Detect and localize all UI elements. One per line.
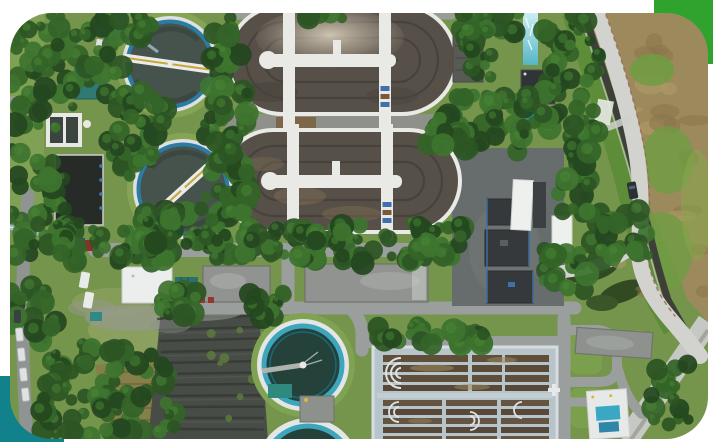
aerial-photo-composition <box>0 0 713 444</box>
lower-channels <box>383 398 549 443</box>
white-blue-building <box>586 389 629 440</box>
parked-car <box>15 328 23 342</box>
dark-shed <box>533 182 546 228</box>
parked-car <box>17 348 25 362</box>
parked-car <box>21 388 29 402</box>
grey-building-c <box>575 327 653 358</box>
parked-car <box>19 368 27 382</box>
parked-car-dark <box>14 310 21 323</box>
white-canopy-1 <box>511 180 534 231</box>
hero-image-block <box>0 0 713 444</box>
teal-container <box>90 312 102 321</box>
water-channel <box>523 13 538 65</box>
aeration-basins <box>373 347 560 443</box>
aerial-photo <box>0 2 713 444</box>
